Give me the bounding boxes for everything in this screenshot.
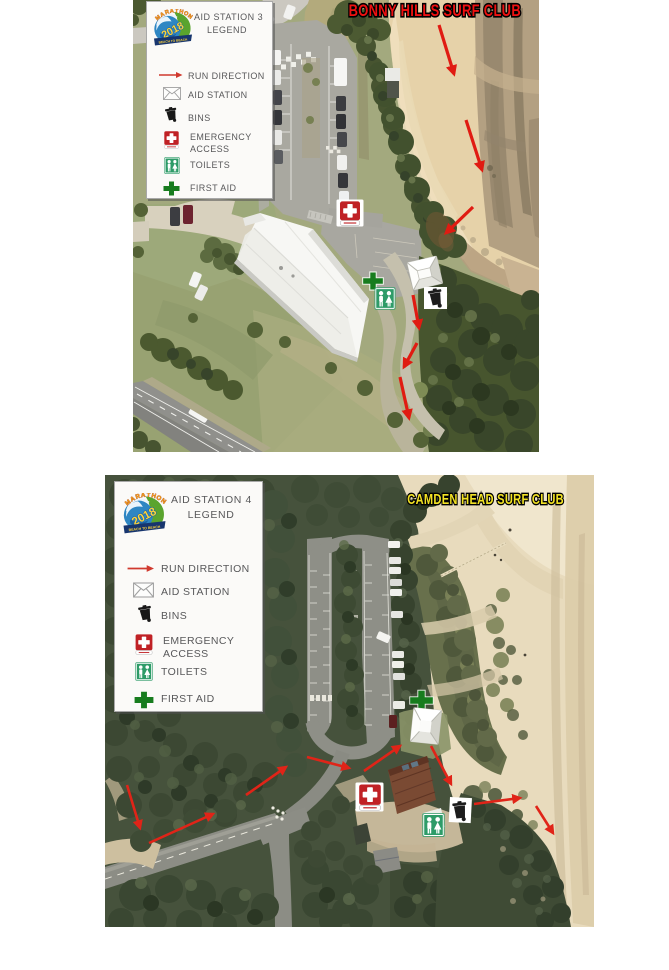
svg-text:BONNY HILLS SURF CLUB: BONNY HILLS SURF CLUB [349,3,521,21]
svg-text:CAMDEN HEAD SURF CLUB: CAMDEN HEAD SURF CLUB [407,490,564,507]
